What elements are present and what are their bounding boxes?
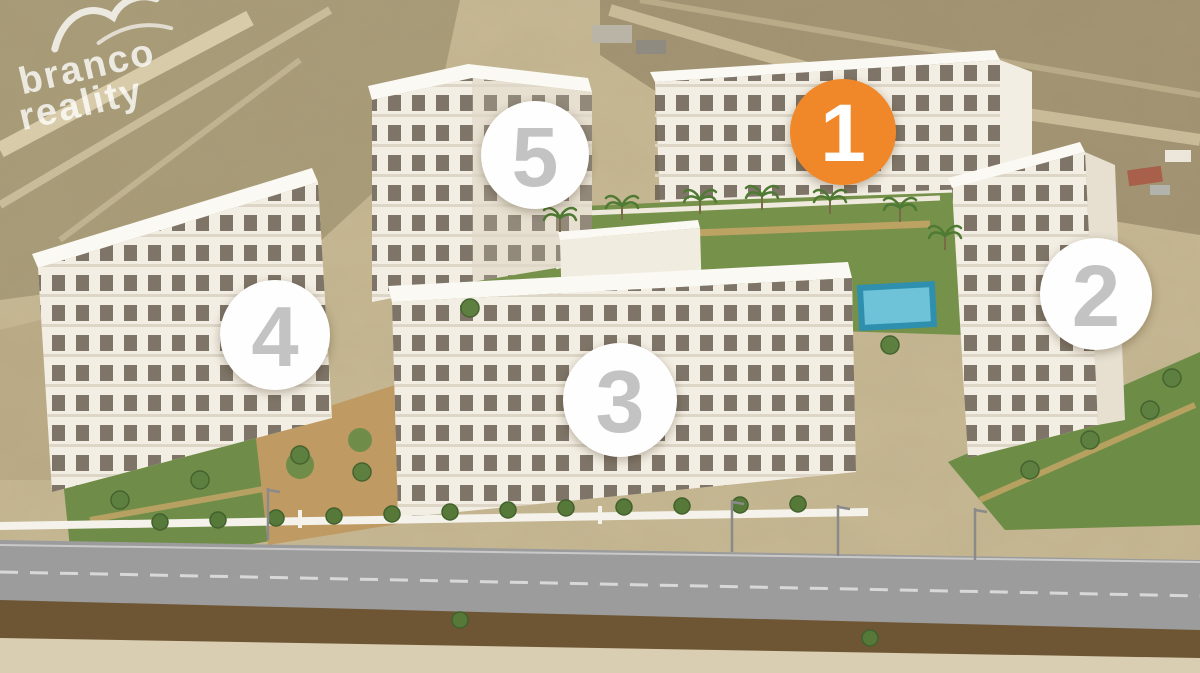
- aerial-render-image: branco reality 12345: [0, 0, 1200, 673]
- markers-layer: 12345: [0, 0, 1200, 673]
- building-marker-2[interactable]: 2: [1040, 238, 1152, 350]
- building-marker-5[interactable]: 5: [481, 101, 589, 209]
- marker-number: 3: [596, 358, 645, 446]
- building-marker-1[interactable]: 1: [790, 79, 896, 185]
- marker-number: 5: [512, 115, 559, 199]
- marker-number: 1: [820, 93, 866, 175]
- marker-number: 4: [251, 295, 298, 380]
- marker-number: 2: [1072, 253, 1120, 340]
- building-marker-3[interactable]: 3: [563, 343, 677, 457]
- building-marker-4[interactable]: 4: [220, 280, 330, 390]
